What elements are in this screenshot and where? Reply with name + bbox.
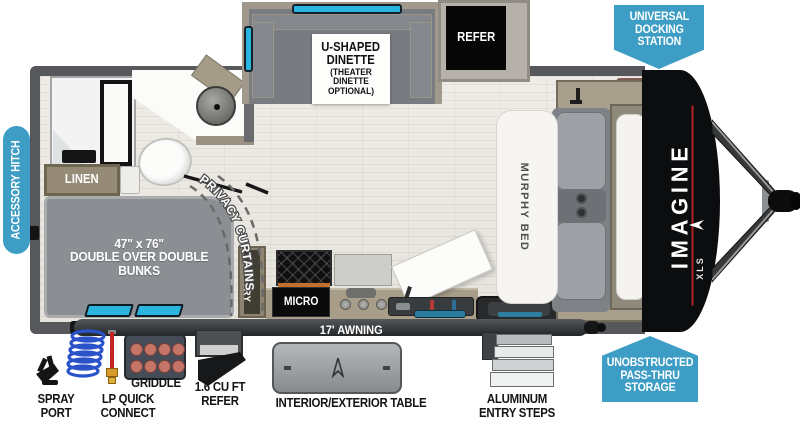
cupholder-icon [576, 193, 587, 204]
dinette-label-card: U-SHAPED DINETTE (THEATER DINETTE OPTION… [312, 34, 390, 104]
pantry-label: PANTRY [247, 252, 257, 312]
griddle-label: GRIDDLE [123, 376, 190, 390]
awning-label: 17' AWNING [296, 321, 406, 335]
exterior-refer-label: 1.6 CU FT REFER [187, 380, 254, 407]
brand-xls: XLS [690, 248, 702, 288]
badge-universal-docking-station: UNIVERSAL DOCKING STATION [614, 5, 704, 69]
grand-design-logo-icon [688, 216, 706, 234]
shower-door [100, 80, 132, 166]
window-icon [414, 310, 466, 318]
cupholder-icon [576, 207, 587, 218]
window-icon [244, 26, 253, 72]
nightstand-handle [576, 88, 580, 100]
badge-pass-thru-storage: UNOBSTRUCTED PASS-THRU STORAGE [602, 336, 698, 402]
lp-hose-icon [104, 330, 124, 386]
hitch-aframe [712, 106, 800, 296]
panel-display [396, 303, 410, 310]
dinette-title: U-SHAPED DINETTE [322, 41, 381, 67]
griddle-icon [124, 334, 186, 380]
linen-cabinet: LINEN [44, 164, 120, 196]
towel-roll [120, 166, 140, 194]
refer-label: REFER [457, 31, 495, 44]
dinette-subtitle: (THEATER DINETTE OPTIONAL) [317, 68, 386, 97]
bunk-label: 47" x 76" DOUBLE OVER DOUBLE BUNKS [70, 237, 208, 278]
bunk-area: 47" x 76" DOUBLE OVER DOUBLE BUNKS [44, 196, 234, 318]
window-icon [292, 4, 402, 14]
kitchen-backsplash [334, 254, 392, 286]
micro-label: MICRO [284, 296, 319, 308]
exterior-table-icon [272, 342, 402, 394]
shower-fixtures [62, 150, 96, 163]
sofa-cushion [556, 222, 606, 300]
badge-accessory-hitch: ACCESSORY HITCH [3, 126, 30, 254]
lp-quick-connect-label: LP QUICK CONNECT [91, 392, 165, 419]
window-icon [498, 312, 542, 317]
table-logo-icon [330, 358, 346, 378]
sink-knob [358, 299, 369, 310]
table-label: INTERIOR/EXTERIOR TABLE [266, 396, 437, 410]
floorplan: LINEN 47" x 76" DOUBLE OVER DOUBLE BUNKS… [0, 0, 800, 423]
awning-knob [597, 323, 606, 332]
stove [276, 250, 332, 286]
refrigerator: REFER [446, 6, 506, 70]
entry-steps-icon [482, 332, 556, 392]
kitchen-faucet [346, 288, 376, 298]
sink-knob [340, 299, 351, 310]
dinette-bench-right [410, 22, 432, 98]
window-icon [84, 304, 134, 317]
spray-port-icon [30, 328, 110, 394]
entry-steps-label: ALUMINUM ENTRY STEPS [467, 392, 567, 419]
sofa-cushion [556, 112, 606, 190]
sink-knob [376, 299, 387, 310]
spray-port-label: SPRAY PORT [23, 392, 90, 419]
dinette-bench-left [252, 22, 274, 98]
microwave: MICRO [272, 287, 330, 317]
window-icon [134, 304, 184, 317]
nightstand-handle [570, 100, 582, 104]
dinette-bench-top [252, 14, 432, 30]
linen-label: LINEN [65, 173, 99, 186]
sink-drain [214, 104, 220, 110]
murphy-bed-label: MURPHY BED [520, 127, 534, 287]
